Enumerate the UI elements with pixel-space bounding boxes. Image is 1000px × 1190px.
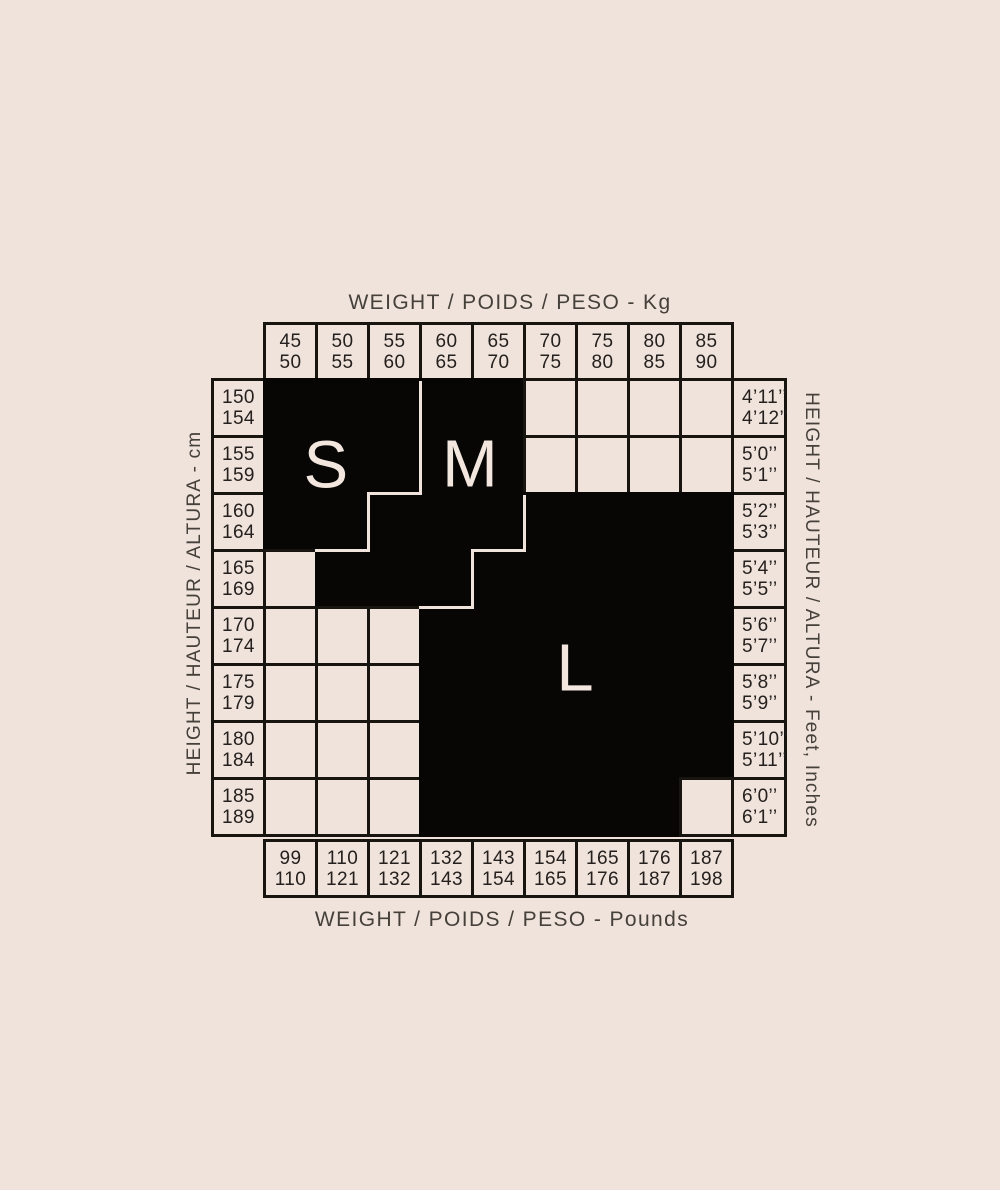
grid-cell-size-l [627, 663, 682, 723]
ft-header-cell: 5’0’’5’1’’ [731, 435, 787, 495]
block-gap-line [315, 549, 370, 552]
kg-header-cell: 4550 [263, 322, 318, 381]
range-value: 176 [638, 848, 671, 869]
grid-cell-size-l [627, 777, 682, 837]
grid-cell-size-m [367, 492, 422, 552]
height-feet-axis-label: HEIGHT / HAUTEUR / ALTURA - Feet, Inches [800, 392, 822, 828]
lb-header-cell: 121132 [367, 839, 422, 898]
range-value: 5’4’’ [742, 558, 777, 579]
grid-cell-size-l [471, 549, 526, 609]
grid-cell-size-l [575, 777, 630, 837]
range-value: 5’2’’ [742, 501, 777, 522]
range-value: 5’10’’ [742, 729, 788, 750]
grid-cell-size-l [627, 492, 682, 552]
range-value: 185 [222, 786, 255, 807]
grid-cell-size-l [679, 606, 734, 666]
ft-header-cell: 5’6’’5’7’’ [731, 606, 787, 666]
size-letter-s: S [304, 432, 349, 499]
range-value: 60 [384, 352, 406, 373]
grid-cell-size-l [575, 492, 630, 552]
lb-header-cell: 187198 [679, 839, 734, 898]
range-value: 169 [222, 579, 255, 600]
range-value: 132 [430, 848, 463, 869]
range-value: 143 [482, 848, 515, 869]
range-value: 5’3’’ [742, 522, 777, 543]
grid-cell-size-m [419, 492, 474, 552]
range-value: 75 [540, 352, 562, 373]
grid-cell-size-l [471, 606, 526, 666]
range-value: 150 [222, 387, 255, 408]
range-value: 184 [222, 750, 255, 771]
ft-header-cell: 5’8’’5’9’’ [731, 663, 787, 723]
grid-cell-size-l [523, 549, 578, 609]
lb-header-cell: 165176 [575, 839, 630, 898]
grid-cell-size-l [679, 492, 734, 552]
range-value: 70 [540, 331, 562, 352]
grid-cell-empty [315, 720, 370, 780]
ft-header-cell: 4’11’’4’12’’ [731, 378, 787, 438]
grid-cell-size-s [367, 435, 422, 495]
range-value: 75 [592, 331, 614, 352]
range-value: 85 [644, 352, 666, 373]
range-value: 55 [332, 352, 354, 373]
block-gap-line [367, 492, 422, 495]
weight-pounds-axis-label: WEIGHT / POIDS / PESO - Pounds [315, 908, 689, 932]
range-value: 5’6’’ [742, 615, 777, 636]
range-value: 176 [586, 869, 619, 890]
block-gap-line [523, 495, 526, 552]
grid-cell-size-l [419, 720, 474, 780]
grid-cell-size-l [627, 606, 682, 666]
range-value: 5’5’’ [742, 579, 777, 600]
grid-cell-size-l [679, 720, 734, 780]
grid-cell-empty [627, 378, 682, 438]
block-gap-line [471, 549, 526, 552]
grid-cell-empty [315, 663, 370, 723]
cm-header-cell: 185189 [211, 777, 266, 837]
cm-header-cell: 160164 [211, 492, 266, 552]
grid-cell-empty [315, 606, 370, 666]
range-value: 189 [222, 807, 255, 828]
range-value: 80 [644, 331, 666, 352]
ft-header-cell: 6’0’’6’1’’ [731, 777, 787, 837]
grid-cell-size-l [419, 777, 474, 837]
range-value: 174 [222, 636, 255, 657]
grid-cell-size-l [471, 720, 526, 780]
weight-kg-axis-label: WEIGHT / POIDS / PESO - Kg [348, 291, 671, 315]
range-value: 5’8’’ [742, 672, 777, 693]
height-cm-axis-label: HEIGHT / HAUTEUR / ALTURA - cm [184, 431, 206, 776]
range-value: 170 [222, 615, 255, 636]
range-value: 165 [534, 869, 567, 890]
range-value: 121 [378, 848, 411, 869]
size-letter-l: L [556, 634, 593, 701]
cm-header-cell: 150154 [211, 378, 266, 438]
grid-cell-empty [575, 435, 630, 495]
range-value: 198 [690, 869, 723, 890]
kg-header-cell: 5560 [367, 322, 422, 381]
grid-cell-size-l [419, 606, 474, 666]
lb-header-cell: 99110 [263, 839, 318, 898]
range-value: 154 [222, 408, 255, 429]
grid-cell-size-l [627, 549, 682, 609]
block-gap-line [419, 381, 422, 438]
size-grid: 4550505555606065657070757580808585909911… [211, 322, 787, 898]
range-value: 65 [488, 331, 510, 352]
range-value: 179 [222, 693, 255, 714]
grid-cell-empty [627, 435, 682, 495]
grid-cell-size-l [523, 492, 578, 552]
range-value: 175 [222, 672, 255, 693]
range-value: 90 [696, 352, 718, 373]
range-value: 160 [222, 501, 255, 522]
kg-header-cell: 8085 [627, 322, 682, 381]
range-value: 5’9’’ [742, 693, 777, 714]
range-value: 55 [384, 331, 406, 352]
ft-header-cell: 5’4’’5’5’’ [731, 549, 787, 609]
block-gap-line [367, 495, 370, 552]
range-value: 50 [332, 331, 354, 352]
lb-header-cell: 143154 [471, 839, 526, 898]
range-value: 60 [436, 331, 458, 352]
grid-cell-size-l [523, 720, 578, 780]
grid-cell-empty [679, 777, 734, 837]
grid-cell-size-l [575, 720, 630, 780]
range-value: 99 [280, 848, 302, 869]
size-chart: WEIGHT / POIDS / PESO - Kg WEIGHT / POID… [211, 322, 787, 898]
grid-cell-size-m [471, 492, 526, 552]
grid-cell-empty [263, 663, 318, 723]
range-value: 121 [326, 869, 359, 890]
range-value: 5’0’’ [742, 444, 777, 465]
range-value: 6’1’’ [742, 807, 777, 828]
range-value: 187 [690, 848, 723, 869]
range-value: 132 [378, 869, 411, 890]
range-value: 110 [327, 848, 359, 869]
range-value: 143 [430, 869, 463, 890]
cm-header-cell: 170174 [211, 606, 266, 666]
range-value: 187 [638, 869, 671, 890]
grid-cell-size-l [627, 720, 682, 780]
range-value: 155 [222, 444, 255, 465]
size-chart-page: { "colors": { "background": "#efe3dc", "… [0, 0, 1000, 1190]
grid-cell-empty [263, 606, 318, 666]
range-value: 159 [222, 465, 255, 486]
grid-cell-size-l [471, 663, 526, 723]
lb-header-cell: 110121 [315, 839, 370, 898]
kg-header-cell: 7580 [575, 322, 630, 381]
kg-header-cell: 7075 [523, 322, 578, 381]
grid-cell-empty [315, 777, 370, 837]
grid-cell-empty [263, 720, 318, 780]
grid-cell-size-l [679, 549, 734, 609]
ft-header-cell: 5’10’’5’11’’ [731, 720, 787, 780]
kg-header-cell: 8590 [679, 322, 734, 381]
range-value: 165 [586, 848, 619, 869]
size-letter-m: M [442, 430, 498, 497]
grid-cell-empty [679, 378, 734, 438]
cm-header-cell: 175179 [211, 663, 266, 723]
grid-cell-size-l [523, 777, 578, 837]
block-gap-line [419, 606, 474, 609]
cm-header-cell: 165169 [211, 549, 266, 609]
ft-header-cell: 5’2’’5’3’’ [731, 492, 787, 552]
grid-cell-size-m [419, 549, 474, 609]
range-value: 70 [488, 352, 510, 373]
range-value: 164 [222, 522, 255, 543]
range-value: 165 [222, 558, 255, 579]
grid-cell-empty [679, 435, 734, 495]
range-value: 45 [280, 331, 302, 352]
range-value: 154 [534, 848, 567, 869]
range-value: 180 [222, 729, 255, 750]
grid-cell-empty [575, 378, 630, 438]
grid-cell-size-s [367, 378, 422, 438]
range-value: 5’1’’ [742, 465, 777, 486]
range-value: 5’7’’ [742, 636, 777, 657]
range-value: 5’11’’ [742, 750, 787, 771]
grid-cell-size-l [419, 663, 474, 723]
grid-cell-empty [523, 378, 578, 438]
kg-header-cell: 5055 [315, 322, 370, 381]
grid-cell-empty [367, 720, 422, 780]
grid-cell-size-m [315, 549, 370, 609]
lb-header-cell: 154165 [523, 839, 578, 898]
grid-cell-empty [367, 606, 422, 666]
grid-cell-size-m [367, 549, 422, 609]
grid-cell-empty [367, 663, 422, 723]
grid-cell-size-l [575, 549, 630, 609]
range-value: 50 [280, 352, 302, 373]
range-value: 4’11’’ [742, 387, 787, 408]
grid-cell-empty [263, 777, 318, 837]
range-value: 80 [592, 352, 614, 373]
range-value: 85 [696, 331, 718, 352]
range-value: 4’12’’ [742, 408, 788, 429]
block-gap-line [419, 438, 422, 495]
range-value: 6’0’’ [742, 786, 777, 807]
grid-cell-empty [263, 549, 318, 609]
lb-header-cell: 176187 [627, 839, 682, 898]
block-gap-line [471, 552, 474, 609]
range-value: 65 [436, 352, 458, 373]
cm-header-cell: 180184 [211, 720, 266, 780]
grid-cell-size-l [679, 663, 734, 723]
kg-header-cell: 6570 [471, 322, 526, 381]
grid-cell-empty [367, 777, 422, 837]
lb-header-cell: 132143 [419, 839, 474, 898]
range-value: 154 [482, 869, 515, 890]
kg-header-cell: 6065 [419, 322, 474, 381]
range-value: 110 [275, 869, 307, 890]
grid-cell-size-l [471, 777, 526, 837]
grid-cell-empty [523, 435, 578, 495]
cm-header-cell: 155159 [211, 435, 266, 495]
